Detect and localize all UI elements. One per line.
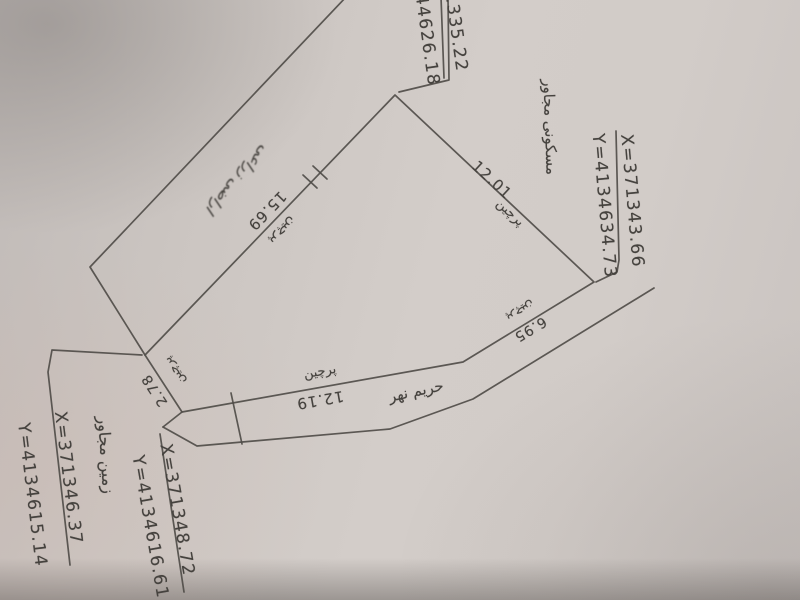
adjacent-residential-label: مسکونی مجاور: [539, 79, 560, 175]
leader-bottom-inner: [231, 393, 242, 444]
parcel-boundary: [145, 95, 594, 412]
vertex-d-jog: [163, 412, 182, 427]
adjacent-boundary-line: [90, 0, 347, 355]
survey-sketch-photo: 1335.22 44626.18 X=371343.66 Y=4134634.7…: [0, 0, 800, 600]
sketch-lines: [0, 0, 800, 600]
tick-mark-1: [303, 175, 317, 188]
